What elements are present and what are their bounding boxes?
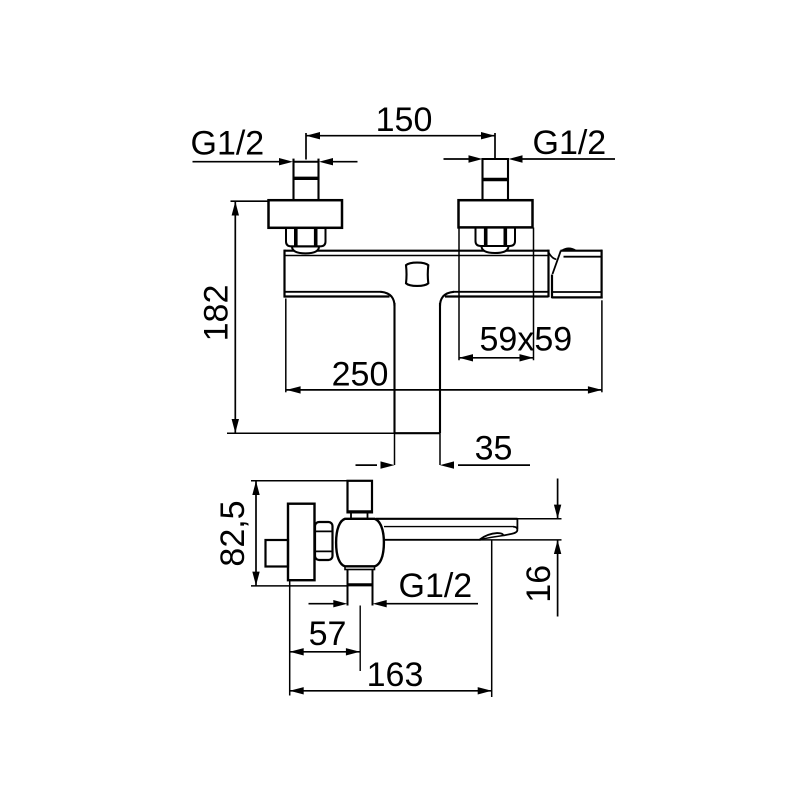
svg-text:250: 250 xyxy=(332,356,389,394)
svg-text:150: 150 xyxy=(376,101,433,139)
svg-text:182: 182 xyxy=(198,285,236,342)
svg-text:59x59: 59x59 xyxy=(480,321,573,359)
svg-text:57: 57 xyxy=(309,615,347,653)
svg-text:G1/2: G1/2 xyxy=(399,567,473,605)
svg-text:G1/2: G1/2 xyxy=(191,125,265,163)
svg-text:82,5: 82,5 xyxy=(214,500,252,566)
svg-text:35: 35 xyxy=(475,430,513,468)
svg-text:16: 16 xyxy=(520,565,558,603)
svg-text:G1/2: G1/2 xyxy=(533,124,607,162)
svg-text:163: 163 xyxy=(367,656,424,694)
